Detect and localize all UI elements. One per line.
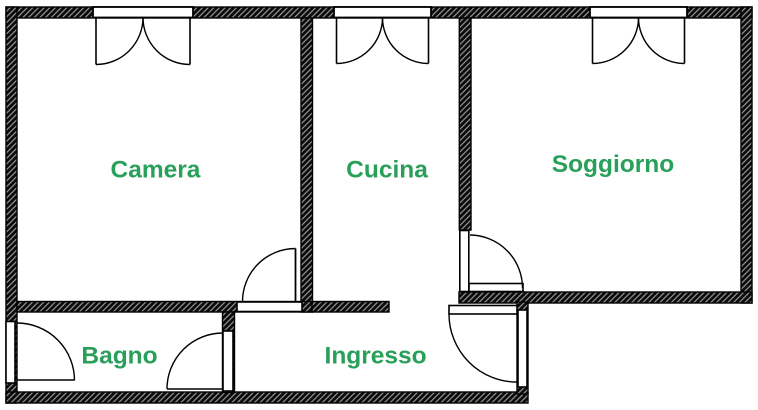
svg-text:Camera: Camera (111, 156, 201, 183)
svg-text:Soggiorno: Soggiorno (552, 151, 675, 178)
svg-text:Ingresso: Ingresso (325, 342, 427, 369)
svg-text:Bagno: Bagno (81, 342, 157, 369)
svg-text:Cucina: Cucina (346, 156, 428, 183)
